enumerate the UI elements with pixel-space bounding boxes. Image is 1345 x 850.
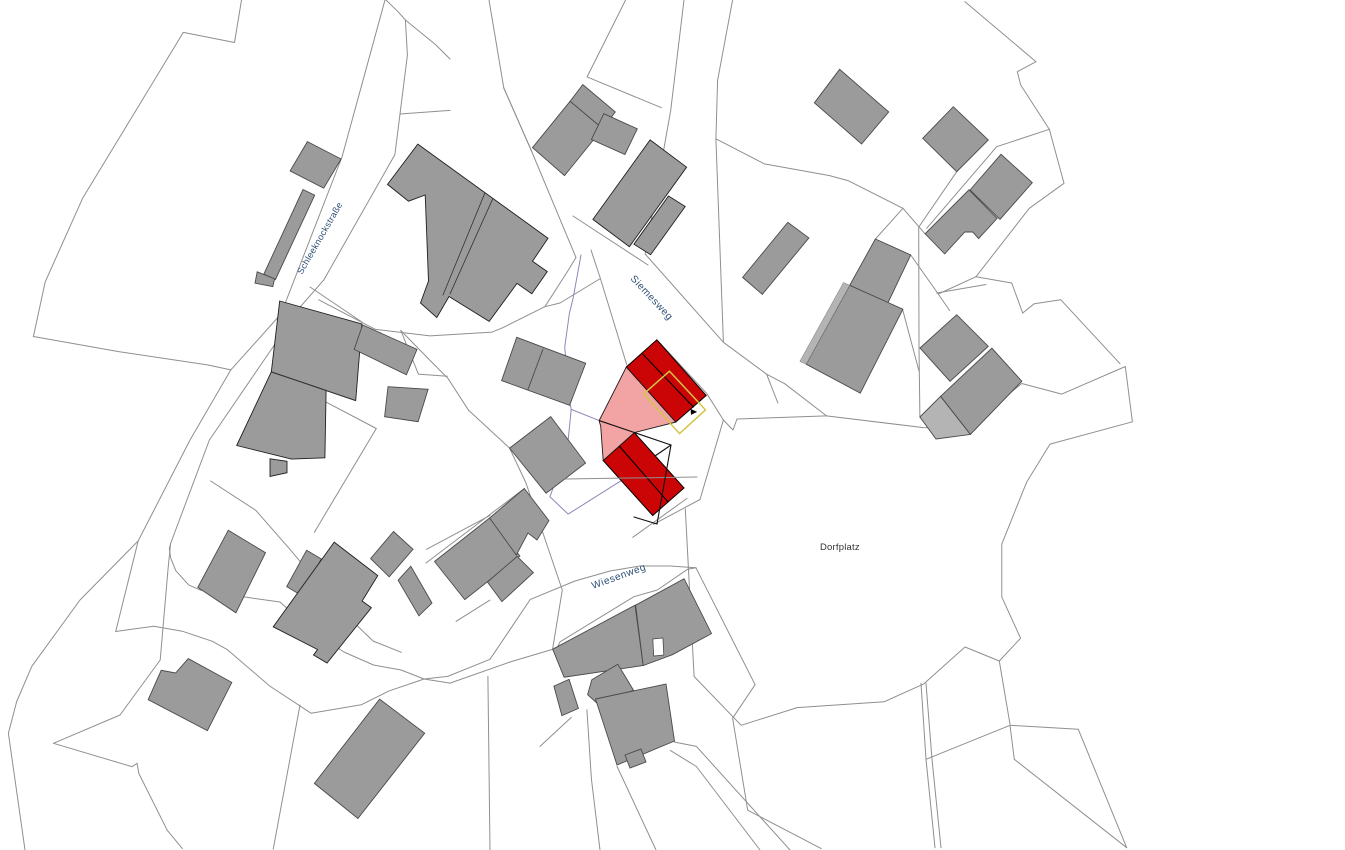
svg-text:Dorfplatz: Dorfplatz [820,542,860,553]
